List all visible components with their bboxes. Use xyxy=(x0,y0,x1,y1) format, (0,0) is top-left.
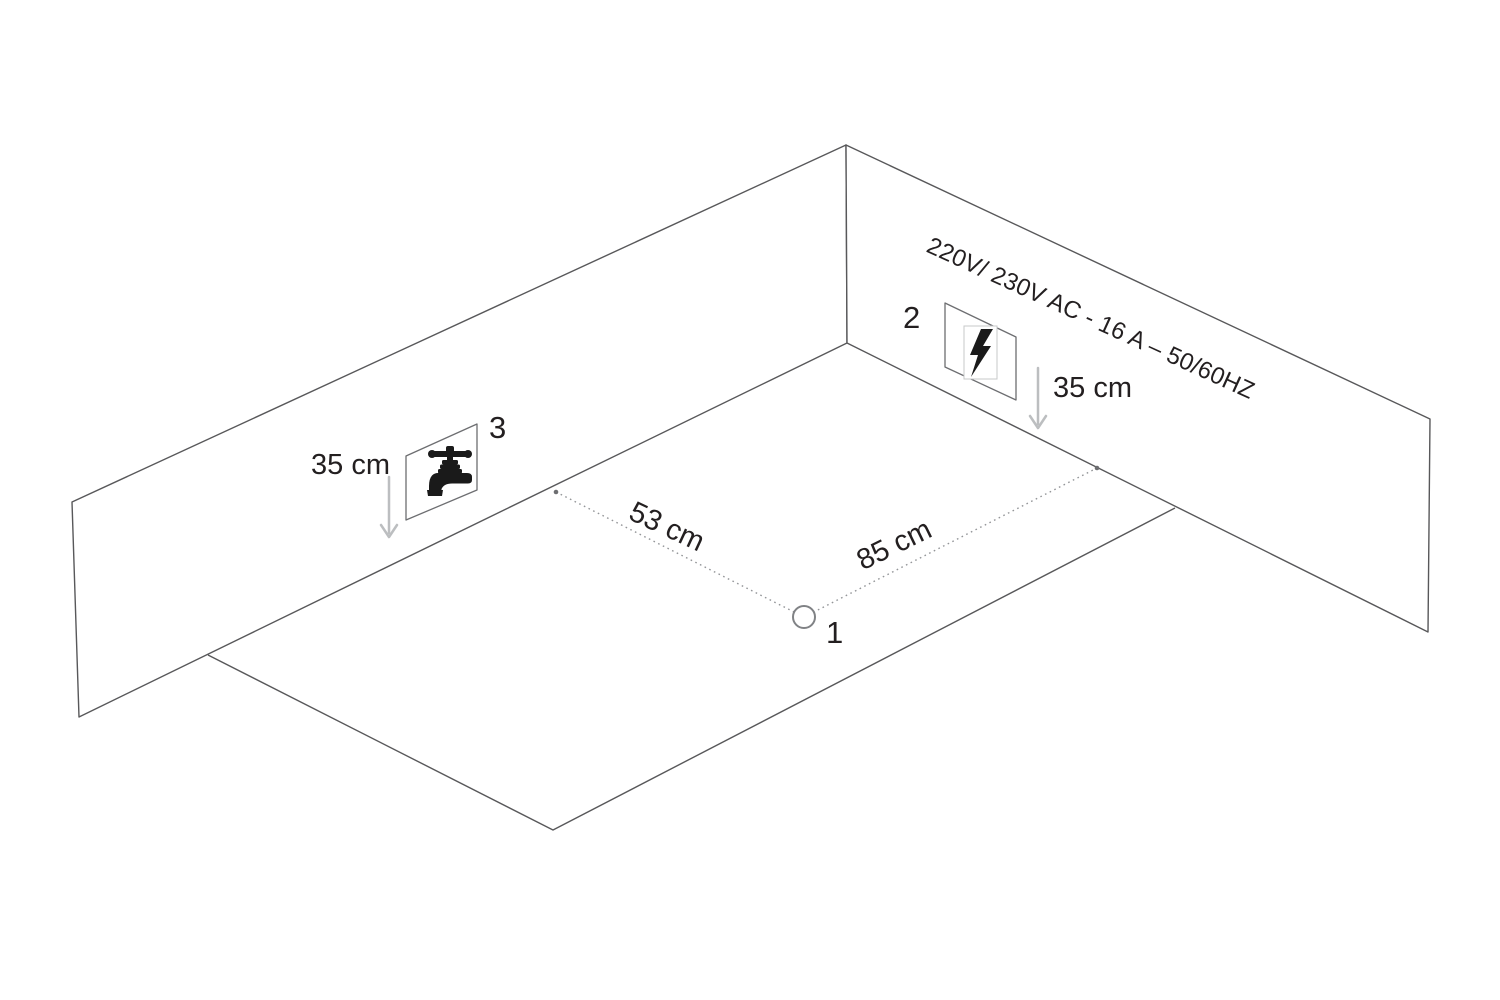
marker-1-label: 1 xyxy=(826,617,843,648)
dotted-line-53cm xyxy=(556,492,804,617)
floor-point-marker xyxy=(793,606,815,628)
dotted-end-dot-left xyxy=(554,490,559,495)
tap-height-label: 35 cm xyxy=(311,451,390,480)
dotted-line-85cm xyxy=(804,468,1097,617)
room-walls xyxy=(72,145,1430,717)
right-wall xyxy=(846,145,1430,632)
dimension-lines xyxy=(554,466,1100,617)
installation-diagram: 220V/ 230V AC - 16 A – 50/60HZ 2 35 cm 3… xyxy=(0,0,1500,1000)
marker-2-label: 2 xyxy=(903,302,920,333)
outlet-height-label: 35 cm xyxy=(1053,374,1132,403)
dotted-end-dot-right xyxy=(1095,466,1100,471)
marker-3-label: 3 xyxy=(489,412,506,443)
left-wall xyxy=(72,145,847,717)
diagram-canvas xyxy=(0,0,1500,1000)
